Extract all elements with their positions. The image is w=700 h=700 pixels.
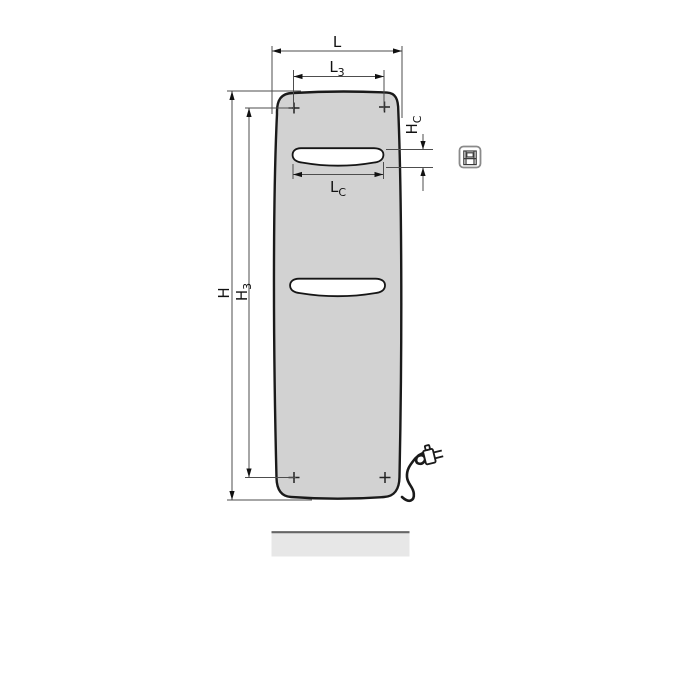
power-plug-icon bbox=[422, 442, 444, 464]
label-L-text: L bbox=[333, 33, 342, 51]
label-HC: HC bbox=[403, 115, 424, 134]
label-LC-subscript: C bbox=[338, 186, 346, 199]
label-L3: L3 bbox=[329, 58, 344, 79]
middle-handle-slot bbox=[290, 279, 385, 297]
top-handle-slot bbox=[293, 148, 384, 166]
label-HC-subscript: C bbox=[411, 115, 424, 123]
panel-radiator-product-icon bbox=[460, 147, 481, 168]
dimension-drawing: L L3 H H3 HC LC bbox=[0, 0, 700, 700]
radiator-panel bbox=[274, 91, 401, 498]
label-L3-subscript: 3 bbox=[338, 66, 345, 79]
floor-shadow bbox=[272, 532, 410, 556]
label-H-text: H bbox=[215, 287, 233, 298]
label-H3: H3 bbox=[233, 283, 254, 301]
label-L: L bbox=[333, 33, 342, 51]
power-cable bbox=[402, 442, 444, 501]
label-H3-subscript: 3 bbox=[241, 283, 254, 290]
label-H3-text: H bbox=[233, 290, 251, 301]
label-H: H bbox=[215, 287, 233, 298]
label-HC-text: H bbox=[403, 123, 421, 134]
technical-drawing-page: L L3 H H3 HC LC bbox=[0, 0, 700, 700]
